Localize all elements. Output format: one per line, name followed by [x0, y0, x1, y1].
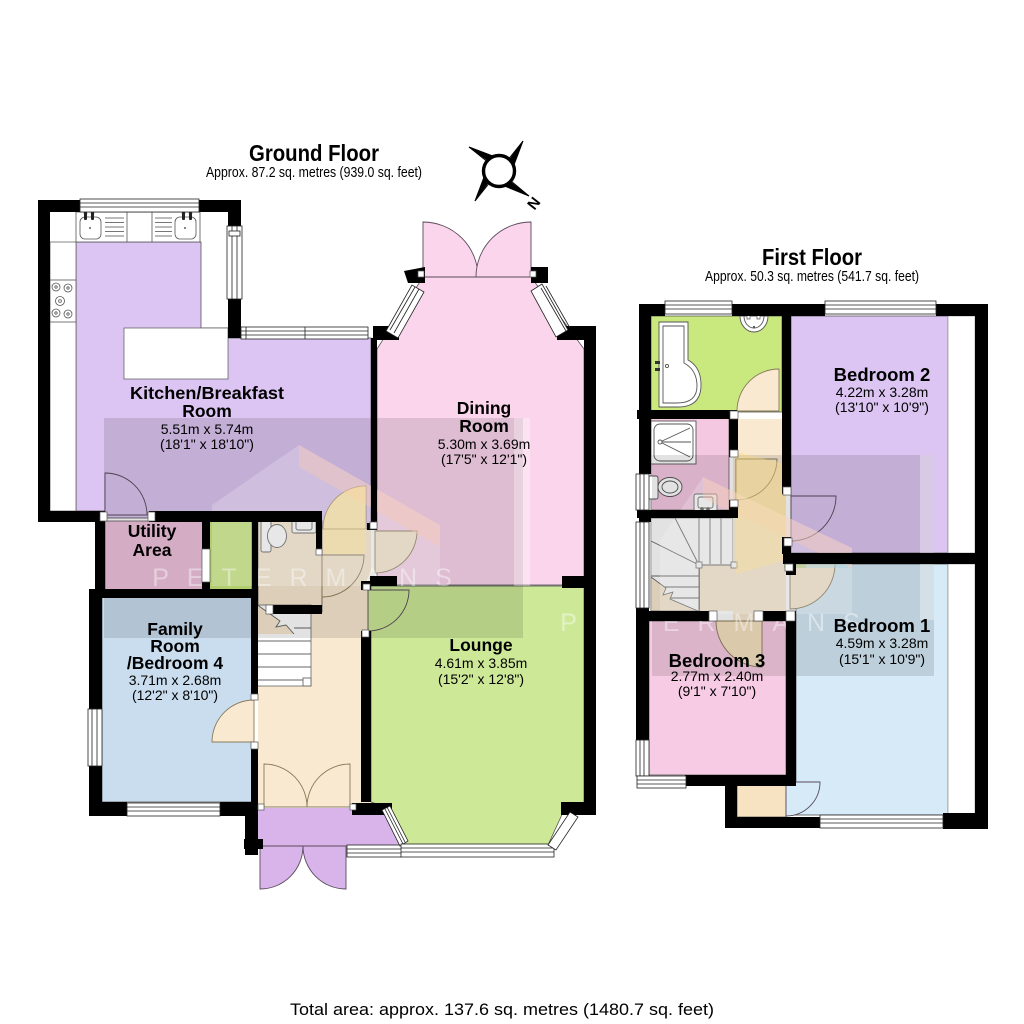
svg-text:Lounge: Lounge [449, 635, 512, 655]
svg-text:Utility: Utility [128, 521, 177, 541]
svg-text:PETERMANS: PETERMANS [152, 564, 470, 592]
svg-text:(18'1" x 18'10"): (18'1" x 18'10") [160, 436, 254, 452]
svg-text:Room: Room [182, 401, 232, 421]
svg-text:(15'1" x 10'9"): (15'1" x 10'9") [839, 651, 925, 667]
svg-text:4.22m x 3.28m: 4.22m x 3.28m [836, 384, 929, 400]
svg-text:2.77m x 2.40m: 2.77m x 2.40m [671, 668, 764, 684]
svg-text:Bedroom 1: Bedroom 1 [834, 615, 931, 636]
svg-text:Kitchen/Breakfast: Kitchen/Breakfast [130, 383, 284, 403]
svg-text:(15'2" x 12'8"): (15'2" x 12'8") [438, 671, 524, 687]
svg-text:Approx. 87.2 sq. metres (939.0: Approx. 87.2 sq. metres (939.0 sq. feet) [206, 165, 422, 181]
svg-text:Area: Area [133, 540, 172, 560]
svg-text:(17'5" x 12'1"): (17'5" x 12'1") [441, 451, 527, 467]
svg-text:(12'2" x 8'10"): (12'2" x 8'10") [132, 687, 218, 703]
svg-text:Approx. 50.3 sq. metres (541.7: Approx. 50.3 sq. metres (541.7 sq. feet) [705, 269, 919, 285]
svg-text:/Bedroom 4: /Bedroom 4 [127, 653, 224, 673]
svg-text:5.51m x 5.74m: 5.51m x 5.74m [161, 421, 254, 437]
svg-text:Bedroom 2: Bedroom 2 [834, 364, 931, 385]
svg-text:4.59m x 3.28m: 4.59m x 3.28m [836, 635, 929, 651]
svg-text:First Floor: First Floor [762, 244, 862, 270]
svg-text:3.71m x 2.68m: 3.71m x 2.68m [129, 672, 222, 688]
svg-text:Total area: approx. 137.6 sq.: Total area: approx. 137.6 sq. metres (14… [290, 1001, 714, 1019]
svg-text:4.61m x 3.85m: 4.61m x 3.85m [435, 655, 528, 671]
svg-text:Dining: Dining [457, 398, 511, 418]
svg-text:5.30m x 3.69m: 5.30m x 3.69m [438, 436, 531, 452]
svg-text:(13'10" x 10'9"): (13'10" x 10'9") [835, 399, 929, 415]
svg-text:(9'1" x 7'10"): (9'1" x 7'10") [678, 683, 756, 699]
svg-text:PETERMANS: PETERMANS [560, 609, 878, 637]
svg-text:Ground Floor: Ground Floor [249, 140, 379, 166]
svg-text:Room: Room [459, 416, 509, 436]
